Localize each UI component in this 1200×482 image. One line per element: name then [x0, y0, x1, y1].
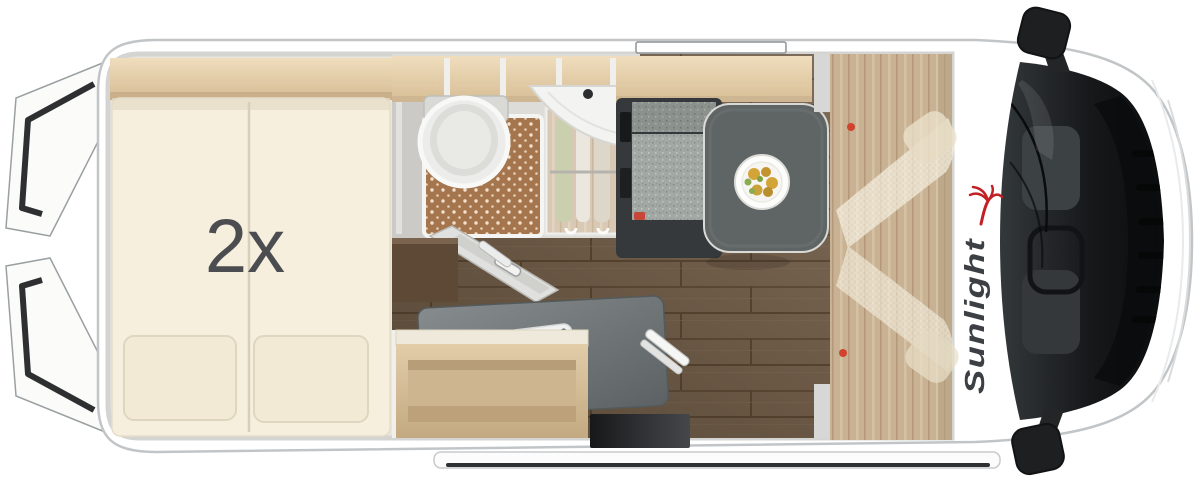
wall-highlight [396, 100, 402, 234]
kitchen-base-cabinet [392, 238, 458, 302]
seatbelt-anchor-bottom [839, 349, 847, 357]
bed-quantity-label: 2x [205, 204, 285, 289]
step-edge [446, 463, 990, 467]
floorplan-svg: 2x [0, 0, 1200, 482]
rear-doors-open [6, 60, 110, 434]
seat-belt-right [620, 168, 631, 198]
seat-belt-left [620, 112, 631, 142]
basin-faucet [583, 89, 593, 99]
pillow-right [254, 336, 368, 422]
dinette-overhead-locker [616, 56, 812, 100]
shelf-top-edge [396, 330, 588, 346]
belt-buckle-red [634, 212, 645, 220]
plate-of-food [735, 155, 789, 209]
bed-area: 2x [110, 58, 392, 436]
toilet-lid [437, 111, 491, 169]
pillow-left [124, 336, 236, 420]
campervan-floorplan: 2x [0, 0, 1200, 482]
toilet [420, 96, 508, 186]
bed-headboard-shelf [110, 58, 392, 96]
table-shadow [706, 254, 790, 270]
roof-window [636, 42, 786, 53]
opening-shadow-top [408, 360, 576, 370]
cabinet-top-edge [392, 238, 458, 244]
bed-head-shadow [112, 98, 390, 110]
opening-shadow-bottom [408, 406, 576, 422]
kitchen-shelf [392, 330, 588, 438]
dinette [616, 42, 828, 270]
seatbelt-anchor-top [847, 123, 855, 131]
dinette-table [704, 104, 828, 270]
brand-name-text: Sunlight [959, 238, 990, 394]
door-well [590, 414, 690, 448]
cab-seating-area [814, 54, 964, 440]
